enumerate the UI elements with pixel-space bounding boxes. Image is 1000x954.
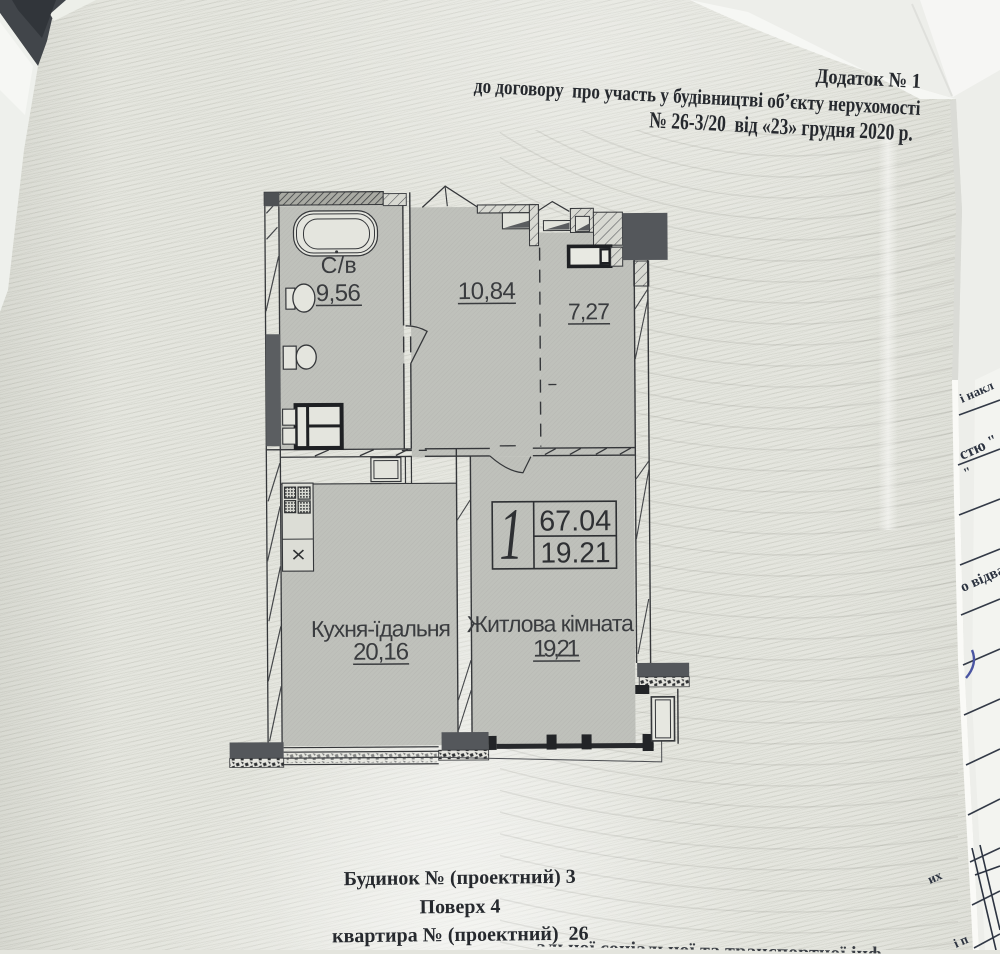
svg-text:і п: і п (951, 931, 971, 950)
svg-text:Житлова кімната: Житлова кімната (467, 610, 634, 637)
svg-text:1: 1 (499, 494, 523, 576)
svg-text:7,27: 7,27 (568, 298, 610, 324)
svg-text:С/в: С/в (321, 252, 357, 278)
svg-text:19.21: 19.21 (540, 537, 610, 569)
svg-text:19,21: 19,21 (533, 635, 580, 662)
svg-text:9,56: 9,56 (316, 280, 361, 307)
svg-text:67.04: 67.04 (539, 505, 611, 537)
svg-text:20,16: 20,16 (353, 638, 409, 665)
svg-text:10,84: 10,84 (458, 278, 516, 305)
svg-text:их: их (925, 867, 944, 887)
